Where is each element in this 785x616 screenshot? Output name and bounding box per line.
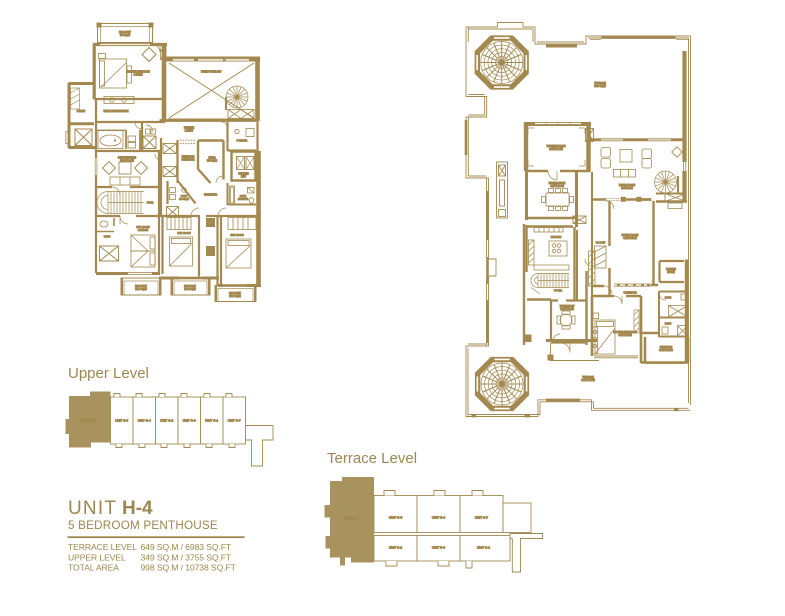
svg-text:OPEN TO BELOW: OPEN TO BELOW: [201, 71, 222, 74]
svg-text:5 BEDROOM PENTHOUSE: 5 BEDROOM PENTHOUSE: [68, 519, 218, 532]
svg-text:UNIT H-4: UNIT H-4: [81, 419, 95, 423]
svg-text:H-4: H-4: [122, 498, 153, 519]
svg-text:UNIT G-6: UNIT G-6: [183, 419, 196, 423]
svg-text:CORRIDOR: CORRIDOR: [181, 159, 194, 162]
svg-text:3.4M X 3.3M: 3.4M X 3.3M: [659, 349, 673, 352]
svg-text:UNIT G-2: UNIT G-2: [160, 419, 173, 423]
svg-text:POWDER: POWDER: [236, 140, 247, 143]
svg-text:10.6 SQ.M: 10.6 SQ.M: [184, 288, 195, 291]
svg-text:10.6 SQ.M: 10.6 SQ.M: [135, 288, 146, 291]
svg-text:3.6X4.0M: 3.6X4.0M: [138, 229, 148, 232]
svg-text:6.8M X 7.7M: 6.8M X 7.7M: [581, 379, 595, 382]
svg-text:UNIT G-1: UNIT G-1: [205, 419, 218, 423]
svg-text:4.0M X 6.6M: 4.0M X 6.6M: [550, 185, 564, 188]
svg-text:KITCHEN: KITCHEN: [551, 236, 562, 239]
svg-text:5.5 SQ.M: 5.5 SQ.M: [207, 160, 217, 163]
svg-text:998 SQ.M / 10738 SQ.FT: 998 SQ.M / 10738 SQ.FT: [141, 563, 237, 573]
svg-text:LOBBY: LOBBY: [185, 130, 194, 133]
svg-text:BATH: BATH: [665, 323, 672, 326]
svg-text:UNIT G-4: UNIT G-4: [138, 419, 151, 423]
svg-text:UNIT H-4: UNIT H-4: [344, 517, 358, 521]
svg-text:4.0M X 5.2M: 4.0M X 5.2M: [618, 334, 632, 337]
svg-text:UNIT G-6: UNIT G-6: [432, 516, 445, 520]
svg-text:LIFT: LIFT: [241, 176, 247, 179]
svg-text:UNIT G-2: UNIT G-2: [389, 546, 402, 550]
svg-text:5.8 SQ.M: 5.8 SQ.M: [120, 34, 130, 37]
svg-text:UNIT G-5: UNIT G-5: [389, 516, 402, 520]
svg-text:CORRIDOR: CORRIDOR: [204, 194, 217, 197]
svg-text:UNIT G-7: UNIT G-7: [475, 516, 488, 520]
svg-text:6.0M X 8.0M: 6.0M X 8.0M: [549, 148, 563, 151]
svg-text:CORRIDOR: CORRIDOR: [623, 292, 636, 295]
svg-text:ROOM: ROOM: [667, 271, 674, 274]
svg-text:4.5 SQ.M: 4.5 SQ.M: [179, 198, 189, 201]
svg-text:UNIT G-3: UNIT G-3: [115, 419, 128, 423]
svg-text:WALK IN WARDROBE: WALK IN WARDROBE: [104, 110, 129, 113]
svg-text:BATH: BATH: [665, 297, 672, 300]
svg-text:UNIT G-7: UNIT G-7: [228, 419, 241, 423]
svg-text:CLOSET: CLOSET: [596, 242, 606, 245]
svg-text:ENSUITE: ENSUITE: [238, 198, 249, 201]
svg-text:4.4M X 5.5M: 4.4M X 5.5M: [623, 237, 637, 240]
svg-text:FOYER: FOYER: [554, 290, 563, 293]
svg-text:88.0 SQ.M: 88.0 SQ.M: [594, 85, 605, 88]
svg-text:UNIT G-1: UNIT G-1: [477, 546, 490, 550]
svg-text:LOBBY: LOBBY: [77, 110, 86, 113]
svg-text:BED ROOM: BED ROOM: [177, 232, 190, 235]
svg-text:5.4 X 8.0M: 5.4 X 8.0M: [621, 187, 633, 190]
svg-text:& BATH: & BATH: [134, 74, 143, 77]
svg-text:BATH: BATH: [104, 236, 111, 239]
svg-text:STAIR: STAIR: [147, 202, 154, 205]
svg-text:UPPER LEVEL: UPPER LEVEL: [68, 552, 126, 562]
svg-text:Terrace Level: Terrace Level: [327, 450, 417, 467]
svg-text:UNIT G-3: UNIT G-3: [432, 546, 445, 550]
svg-text:10.6 SQ.M: 10.6 SQ.M: [229, 295, 240, 298]
svg-text:349 SQ.M / 3755 SQ.FT: 349 SQ.M / 3755 SQ.FT: [141, 552, 232, 562]
svg-text:BED ROOM: BED ROOM: [230, 234, 243, 237]
svg-text:TERRACE LEVEL: TERRACE LEVEL: [68, 542, 137, 552]
svg-text:649 SQ.M / 6983 SQ.FT: 649 SQ.M / 6983 SQ.FT: [141, 542, 232, 552]
svg-text:UNIT: UNIT: [68, 498, 117, 519]
svg-text:Upper Level: Upper Level: [68, 365, 149, 382]
svg-text:TOTAL AREA: TOTAL AREA: [68, 563, 119, 573]
